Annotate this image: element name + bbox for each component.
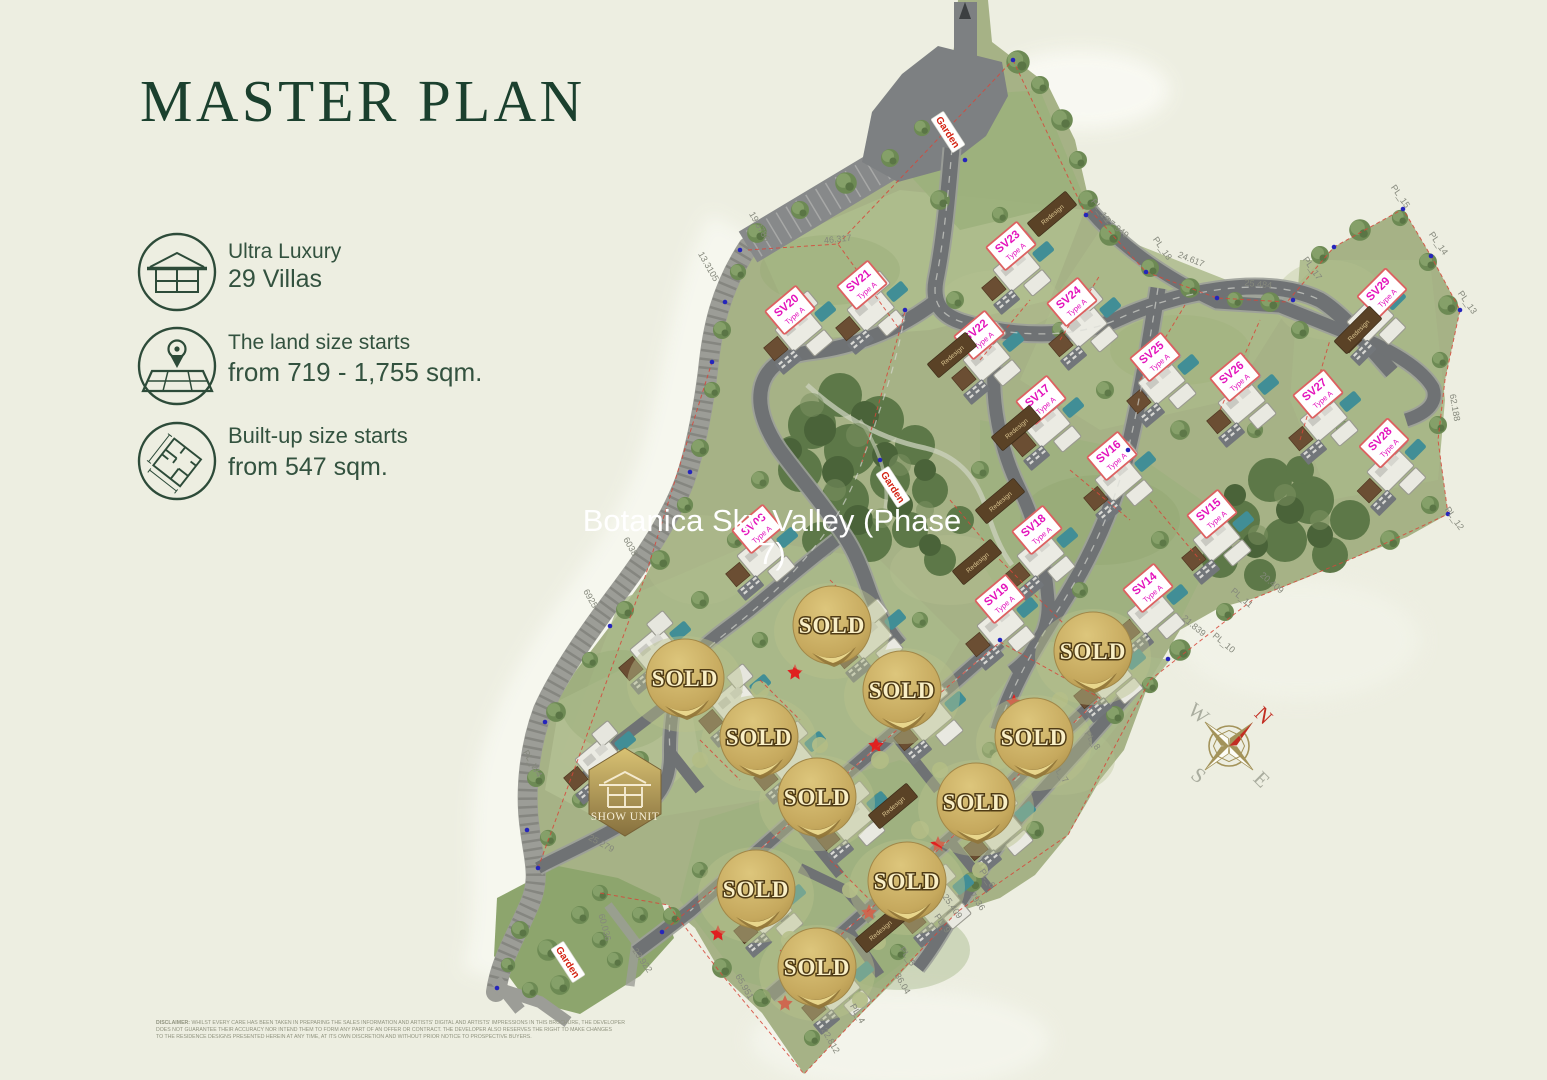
svg-text:7): 7) bbox=[758, 536, 786, 571]
svg-text:MASTER PLAN: MASTER PLAN bbox=[140, 68, 586, 134]
svg-text:Botanica Sky Valley (Phase: Botanica Sky Valley (Phase bbox=[583, 503, 962, 538]
svg-text:29 Villas: 29 Villas bbox=[228, 265, 322, 293]
svg-text:SHOW UNIT: SHOW UNIT bbox=[591, 811, 660, 823]
svg-text:DOES NOT GUARANTEE THEIR ACCUR: DOES NOT GUARANTEE THEIR ACCURACY NOR IN… bbox=[156, 1027, 612, 1033]
svg-text:TO THE RESIDENCE DESIGNS PRESE: TO THE RESIDENCE DESIGNS PRESENTED HEREI… bbox=[156, 1034, 532, 1040]
svg-text:The land size starts: The land size starts bbox=[228, 331, 410, 354]
svg-text:DISCLAIMER: WHILST EVERY CARE: DISCLAIMER: WHILST EVERY CARE HAS BEEN T… bbox=[156, 1020, 625, 1026]
svg-text:from 719 - 1,755 sqm.: from 719 - 1,755 sqm. bbox=[228, 357, 482, 387]
svg-text:Ultra Luxury: Ultra Luxury bbox=[228, 240, 342, 263]
svg-text:from 547 sqm.: from 547 sqm. bbox=[228, 453, 388, 481]
svg-text:Built-up size starts: Built-up size starts bbox=[228, 423, 408, 448]
